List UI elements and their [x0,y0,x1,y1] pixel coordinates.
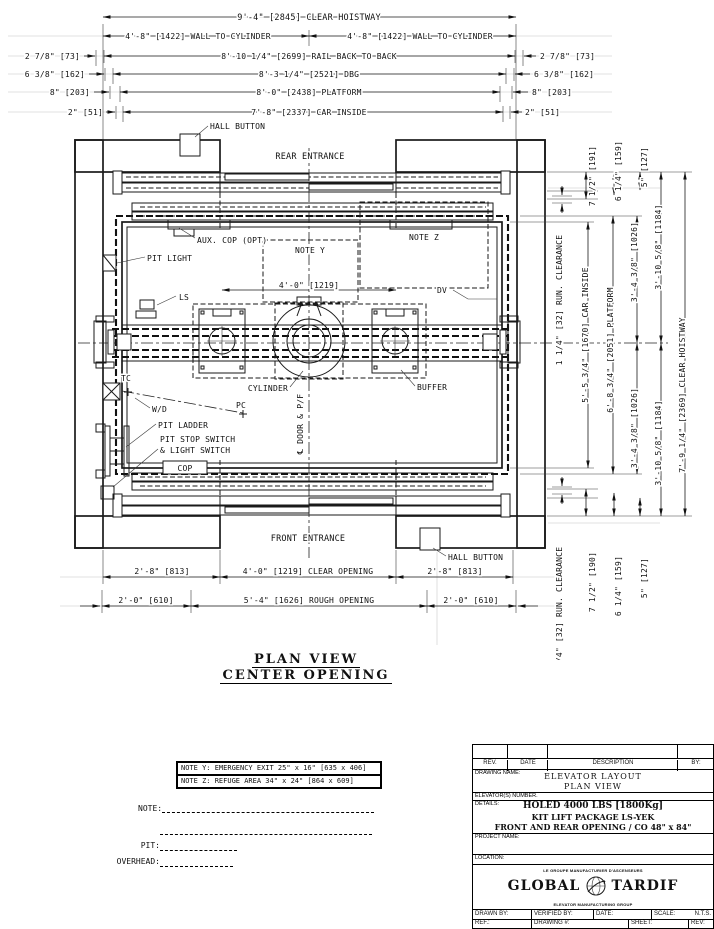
details-row: DETAILS: HOLED 4000 LBS [1800Kg] KIT LIF… [473,800,713,834]
dim-platform-right: 6'-8 3/4" [2051] PLATFORM [606,287,615,412]
logo-tagline-top: LE GROUPE MANUFACTURIER D'ASCENSEURS [473,868,713,873]
ls-fixture [136,300,156,318]
globe-icon [584,874,608,898]
pit-stop-label-2: & LIGHT SWITCH [160,446,230,455]
note-z-label: NOTE Z [409,233,439,242]
drawing-no-label: DRAWING #: [534,920,569,926]
rail-left [94,316,131,368]
pit-ladder-label: PIT LADDER [158,421,208,430]
dim-b2-left: 2'-0" [610] [118,596,173,605]
dim-right-1: 2 7/8" [73] [540,52,595,61]
cop-label: COP [177,464,192,473]
dim-left-2: 6 3/8" [162] [25,70,85,79]
title-block: REV. DATE DESCRIPTION BY: DRAWING NAME: … [472,744,714,929]
rear-entrance-sill [113,171,510,236]
dim-right-3: 8" [203] [532,88,572,97]
buffer-left [199,309,245,373]
title-line-1: PLAN VIEW [252,652,360,668]
dim-car-inside-top: 7'-8" [2337] CAR INSIDE [251,108,366,117]
verified-by-label: VERIFIED BY: [534,911,573,917]
ref-label: REF.: [475,920,490,926]
tc-fixture [103,383,132,400]
logo-row: GLOBAL TARDIF [473,874,713,900]
dim-half-platform-bottom: 3'-4 3/8" [1026] [630,388,639,468]
note-y-label: NOTE Y [295,246,325,255]
scale-value: N.T.S. [683,911,711,917]
revision-empty-row [473,745,713,759]
pc-label: PC [236,401,246,410]
dim-7half-bottom: 7 1/2" [190] [588,552,597,612]
pit-light-label: PIT LIGHT [147,254,192,263]
right-extension-lines [510,172,692,516]
scale-label: SCALE: [654,911,675,917]
cylinder-label: CYLINDER [248,384,288,393]
notes-box: NOTE Y: EMERGENCY EXIT 25" x 16" [635 x … [176,761,382,789]
project-name-label: PROJECT NAME: [475,834,520,840]
dim-b1-center: 4'-0" [1219] CLEAR OPENING [243,567,373,576]
logo-global: GLOBAL [508,878,581,894]
dim-left-4: 2" [51] [68,108,103,117]
dim-dbg: 8'-3 1/4" [2521] DBG [259,70,359,79]
note-field-line-1[interactable] [162,803,374,813]
pit-stop-label-1: PIT STOP SWITCH [160,435,235,444]
dim-left-1: 2 7/8" [73] [25,52,80,61]
drawn-by-label: DRAWN BY: [475,911,508,917]
note-field-line-2[interactable] [160,825,372,835]
pit-light-fixture [103,255,116,271]
details-line-3: FRONT AND REAR OPENING / CO 48" x 84" [473,822,713,832]
dim-run-clearance-top: 1 1/4" [32] RUN. CLEARANCE [555,235,564,365]
door-dim-label: 4'-0" [1219] [279,281,339,290]
pit-ladder-fixture [96,424,129,478]
dim-platform-top: 8'-0" [2438] PLATFORM [256,88,361,97]
sheet-label: SHEET: [631,920,652,926]
location-label: LOCATION: [475,855,504,861]
dim-right-4: 2" [51] [525,108,560,117]
elevators-number-label: ELEVATOR(S) NUMBER. [475,793,538,799]
dim-clear-hoistway-top: 9'-4" [2845] CLEAR HOISTWAY [237,13,381,23]
drawing-sheet: { "dims_top": { "clear_hoistway": "9'-4\… [0,0,714,929]
pit-field-label: PIT: [141,841,160,850]
front-entrance-label: FRONT ENTRANCE [271,534,345,544]
buffer-label: BUFFER [417,383,447,392]
pc-mark [239,410,247,418]
drawing-name-line-2: PLAN VIEW [473,782,713,791]
hall-button-bottom-box [420,528,440,550]
rev-label: REV: [691,920,705,926]
dim-half-hoistway-top: 3'-10 5/8" [1184] [654,204,663,289]
dim-rail-back: 8'-10 1/4" [2699] RAIL BACK TO BACK [221,52,397,61]
dim-clear-hoistway-right: 7'-9 1/4" [2369] CLEAR HOISTWAY [678,317,687,473]
logo-tagline-bottom: ELEVATOR MANUFACTURING GROUP [473,902,713,907]
dim-left-3: 8" [203] [50,88,90,97]
date-label: DATE: [596,911,613,917]
top-extension-lines [96,24,523,140]
dim-half-platform-top: 3'-4 3/8" [1026] [630,222,639,302]
aux-cop-label: AUX. COP (OPT) [197,236,267,245]
dim-b2-right: 2'-0" [610] [443,596,498,605]
wd-label: W/D [152,405,167,414]
pit-field-line[interactable] [160,841,237,851]
hall-button-bottom-label: HALL BUTTON [448,553,503,562]
note-z-box [360,202,488,288]
overhead-field-line[interactable] [160,857,233,867]
project-name-row: PROJECT NAME: [473,833,713,855]
dv-label: DV [437,286,447,295]
dim-6quarter-top: 6 1/4" [159] [614,141,623,201]
title-line-2: CENTER OPENING [220,668,391,684]
rev-col-label: REV. [473,760,507,766]
drawing-name-row: DRAWING NAME: ELEVATOR LAYOUT PLAN VIEW [473,769,713,793]
dim-b1-right: 2'-8" [813] [427,567,482,576]
hall-button-top-label: HALL BUTTON [210,122,265,131]
dim-car-inside-right: 5'-5 3/4" [1670] CAR INSIDE [581,267,590,402]
plan-view-drawing: 9'-4" [2845] CLEAR HOISTWAY 4'-8" [1422]… [0,0,714,660]
overhead-field-label: OVERHEAD: [117,857,160,866]
details-line-1: HOLED 4000 LBS [1800Kg] [473,801,713,811]
sign-row-2: REF.: DRAWING #: SHEET: REV: [473,919,713,928]
travel-cable-line [122,391,243,413]
hoistway-walls [75,140,545,548]
dim-b1-left: 2'-8" [813] [134,567,189,576]
buffer-right [372,309,418,373]
note-y-text: NOTE Y: EMERGENCY EXIT 25" x 16" [635 x … [177,762,381,775]
dim-wall-to-cyl-left: 4'-8" [1422] WALL TO CYLINDER [125,32,270,41]
rear-entrance-label: REAR ENTRANCE [275,152,344,162]
dim-6quarter-bottom: 6 1/4" [159] [614,556,623,616]
dim-5-top: 5" [127] [640,147,649,187]
dim-wall-to-cyl-right: 4'-8" [1422] WALL TO CYLINDER [347,32,492,41]
hall-button-top-box [180,134,200,156]
note-z-text: NOTE Z: REFUGE AREA 34" x 24" [864 x 609… [177,775,381,788]
note-field-label: NOTE: [138,804,162,813]
dim-5-bottom: 5" [127] [640,558,649,598]
logo-tardif: TARDIF [612,878,679,894]
ls-label: LS [179,293,189,302]
front-entrance-sill [113,473,510,517]
drawing-title: PLAN VIEW CENTER OPENING [0,652,612,684]
leader-lines [113,126,497,556]
dim-b2-center: 5'-4" [1626] ROUGH OPENING [244,596,374,605]
dim-run-clearance-bottom: 1 1/4" [32] RUN. CLEARANCE [555,547,564,660]
dim-right-2: 6 3/8" [162] [534,70,594,79]
dim-half-hoistway-bottom: 3'-10 5/8" [1184] [654,400,663,485]
details-line-2: KIT LIFT PACKAGE LS-YEK [473,812,713,822]
logo-area: LE GROUPE MANUFACTURIER D'ASCENSEURS GLO… [473,864,713,910]
dim-7half-top: 7 1/2" [191] [588,146,597,206]
door-centerline-label: ℄ DOOR & P/F [296,394,305,456]
tc-label: TC [121,374,131,383]
drawing-name-line-1: ELEVATOR LAYOUT [473,772,713,781]
